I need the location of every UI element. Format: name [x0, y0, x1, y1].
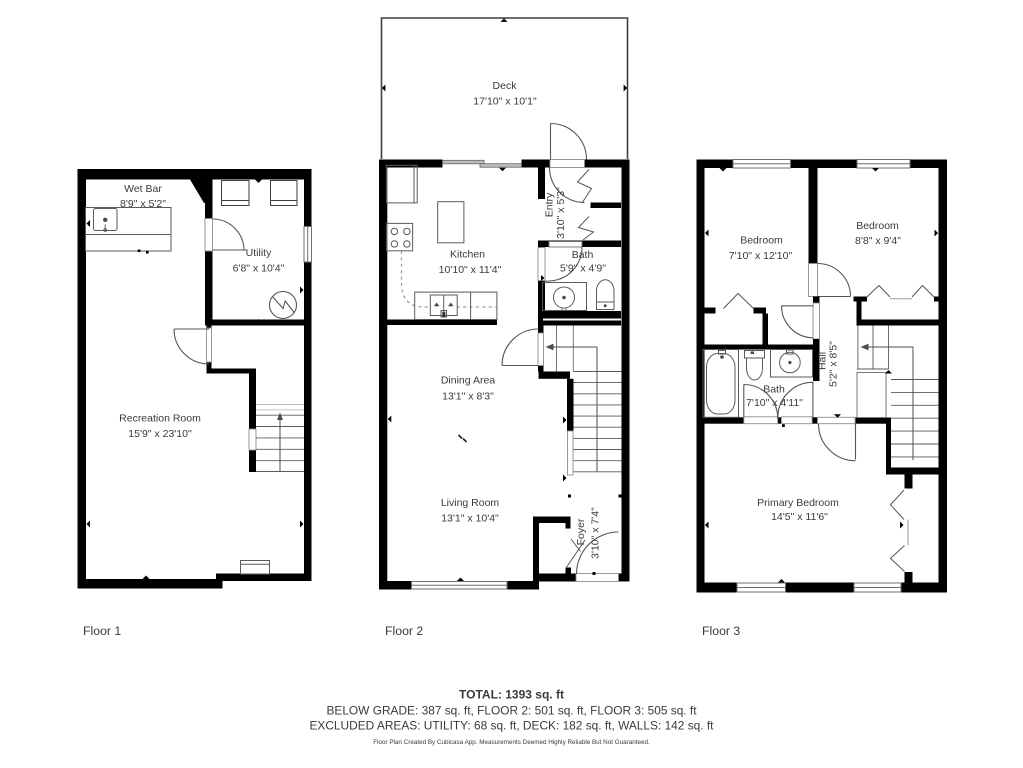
svg-text:8'9" x 5'2": 8'9" x 5'2": [120, 198, 166, 210]
svg-text:13'1" x 8'3": 13'1" x 8'3": [442, 391, 494, 403]
svg-text:Floor Plan Created By Cubicasa: Floor Plan Created By Cubicasa App. Meas…: [373, 739, 650, 746]
svg-text:7'10" x 4'11": 7'10" x 4'11": [746, 397, 803, 409]
svg-text:3'10" x 7'4": 3'10" x 7'4": [590, 507, 602, 559]
svg-text:Utility: Utility: [246, 247, 272, 259]
svg-text:Recreation Room: Recreation Room: [119, 413, 201, 425]
svg-text:Floor 3: Floor 3: [702, 624, 740, 638]
svg-text:Floor 1: Floor 1: [83, 624, 121, 638]
svg-text:TOTAL: 1393 sq. ft: TOTAL: 1393 sq. ft: [459, 688, 564, 702]
svg-text:Kitchen: Kitchen: [450, 249, 485, 261]
svg-text:BELOW GRADE: 387 sq. ft, FLOOR: BELOW GRADE: 387 sq. ft, FLOOR 2: 501 sq…: [326, 704, 697, 718]
svg-text:3'10" x 5'3": 3'10" x 5'3": [555, 187, 567, 239]
svg-text:5'9" x 4'9": 5'9" x 4'9": [560, 263, 606, 275]
svg-text:Bath: Bath: [763, 384, 785, 396]
svg-text:Bath: Bath: [572, 249, 594, 261]
svg-text:Primary Bedroom: Primary Bedroom: [757, 497, 839, 509]
svg-text:17'10" x 10'1": 17'10" x 10'1": [473, 96, 537, 108]
svg-text:Dining Area: Dining Area: [441, 375, 495, 387]
svg-text:Bedroom: Bedroom: [740, 235, 783, 247]
svg-text:7'10" x 12'10": 7'10" x 12'10": [729, 250, 793, 262]
svg-text:Floor 2: Floor 2: [385, 624, 423, 638]
svg-text:Bedroom: Bedroom: [856, 220, 899, 232]
svg-text:Foyer: Foyer: [575, 518, 587, 545]
svg-text:Deck: Deck: [493, 80, 518, 92]
svg-text:10'10" x 11'4": 10'10" x 11'4": [439, 264, 502, 276]
svg-text:13'1" x 10'4": 13'1" x 10'4": [441, 513, 499, 525]
svg-text:6'8" x 10'4": 6'8" x 10'4": [233, 263, 285, 275]
svg-text:Wet Bar: Wet Bar: [124, 183, 162, 195]
svg-text:Living Room: Living Room: [441, 497, 500, 509]
svg-text:5'2" x 8'5": 5'2" x 8'5": [828, 341, 840, 387]
svg-text:Entry: Entry: [544, 192, 556, 217]
svg-text:14'5" x 11'6": 14'5" x 11'6": [771, 511, 828, 523]
svg-text:15'9" x 23'10": 15'9" x 23'10": [128, 428, 192, 440]
svg-text:EXCLUDED AREAS: UTILITY: 68 sq: EXCLUDED AREAS: UTILITY: 68 sq. ft, DECK…: [309, 719, 714, 733]
svg-text:8'8" x 9'4": 8'8" x 9'4": [855, 235, 901, 247]
